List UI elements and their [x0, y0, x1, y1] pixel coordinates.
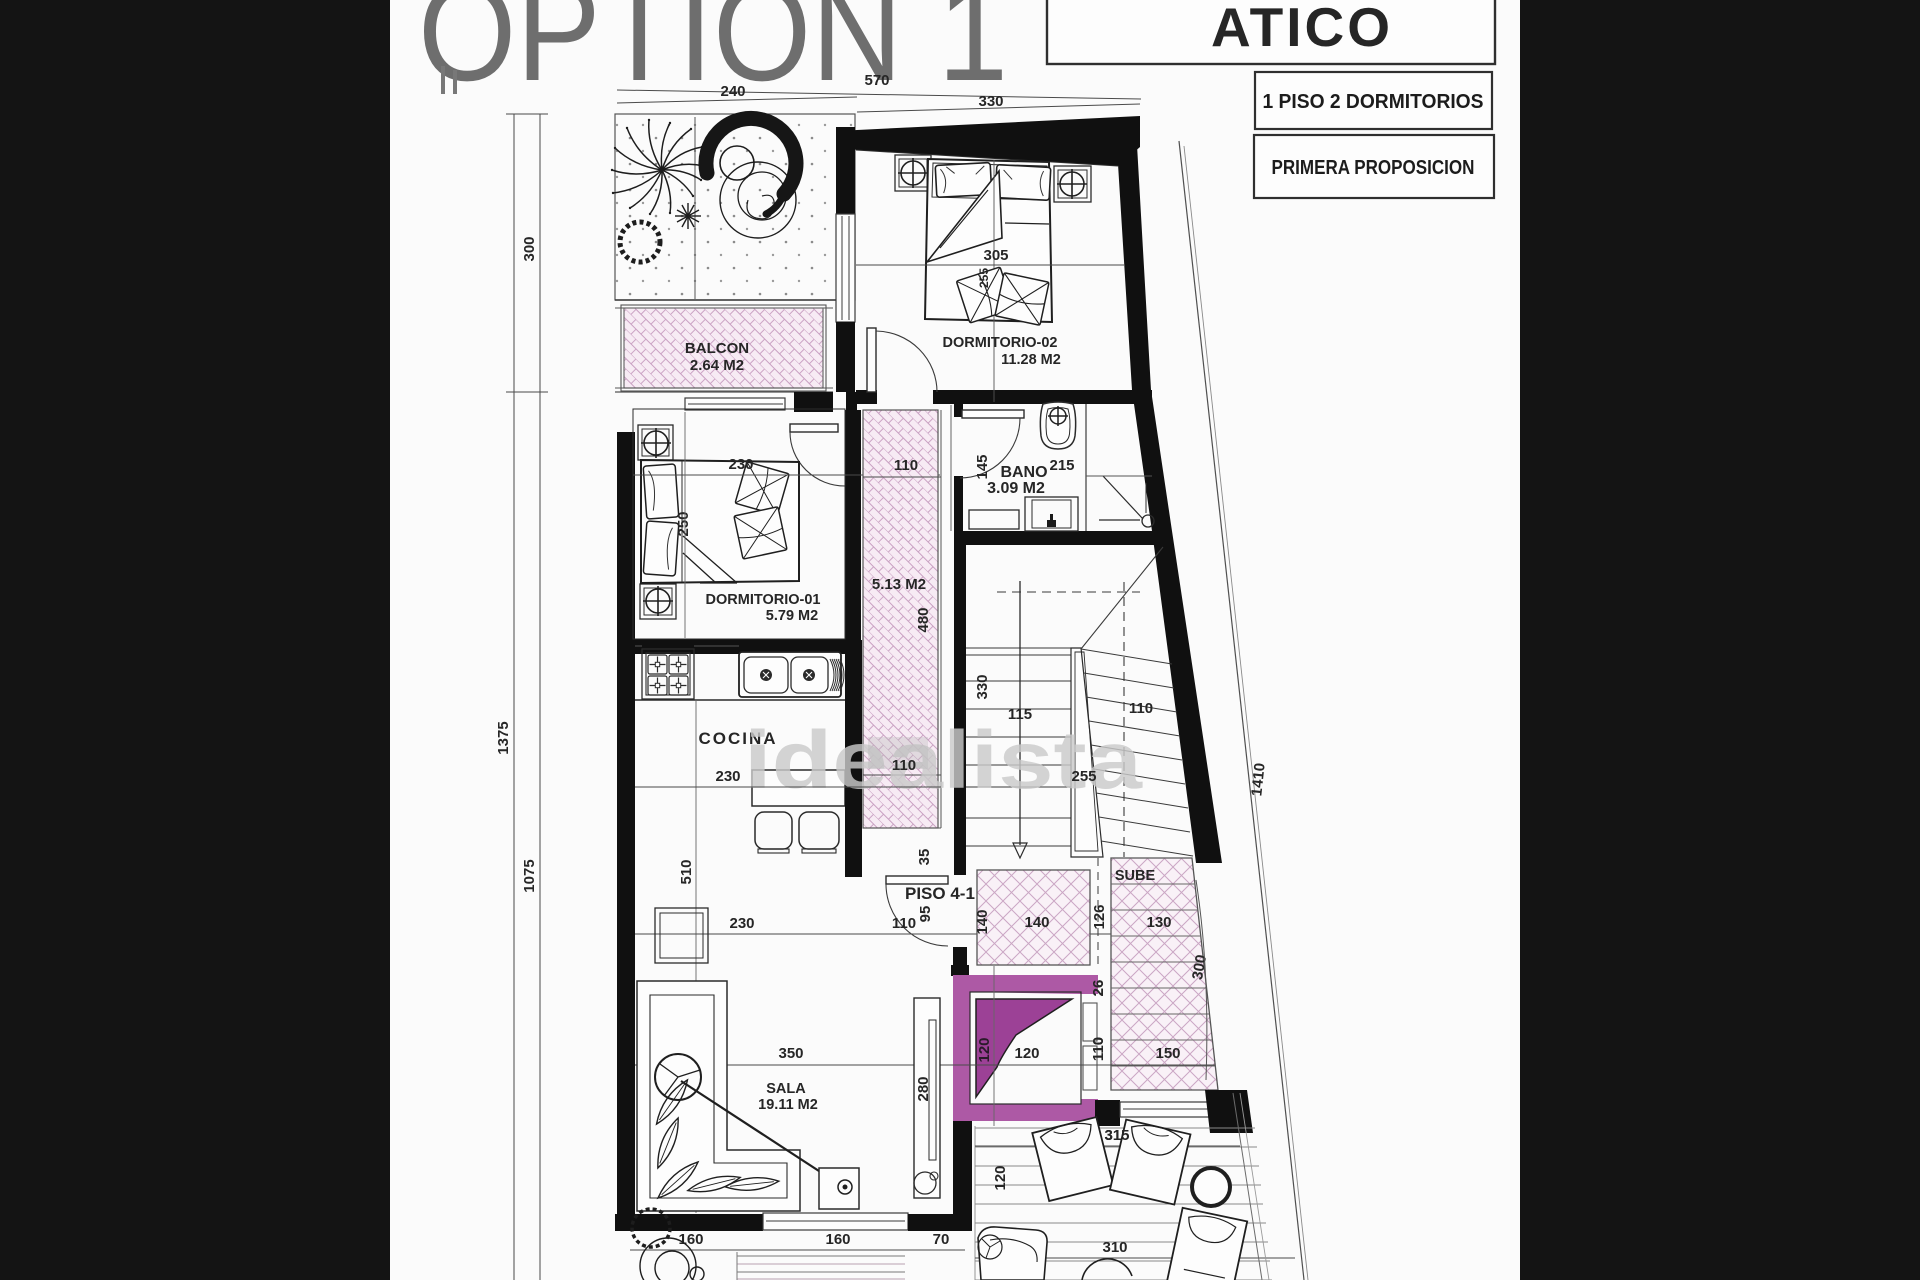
svg-text:350: 350	[778, 1045, 803, 1062]
svg-text:230: 230	[728, 456, 753, 473]
svg-text:70: 70	[933, 1231, 950, 1248]
svg-text:240: 240	[720, 83, 745, 100]
svg-text:SALA: SALA	[766, 1081, 806, 1097]
svg-text:255: 255	[1071, 768, 1096, 785]
svg-text:120: 120	[992, 1165, 1009, 1190]
svg-text:570: 570	[864, 72, 889, 89]
svg-text:1410: 1410	[1248, 762, 1268, 797]
svg-text:215: 215	[1049, 457, 1074, 474]
svg-text:150: 150	[1155, 1045, 1180, 1062]
svg-text:110: 110	[1090, 1037, 1107, 1061]
svg-text:130: 130	[1146, 914, 1171, 931]
svg-text:280: 280	[915, 1076, 932, 1101]
svg-text:305: 305	[983, 247, 1008, 264]
svg-text:OPTION 1: OPTION 1	[418, 0, 1008, 110]
svg-text:PISO 4-1: PISO 4-1	[905, 884, 975, 903]
svg-text:SUBE: SUBE	[1115, 868, 1156, 884]
svg-text:230: 230	[729, 915, 754, 932]
svg-text:5.13 M2: 5.13 M2	[872, 576, 926, 593]
svg-text:95: 95	[917, 906, 934, 923]
svg-text:BANO: BANO	[1000, 464, 1047, 481]
svg-text:19.11 M2: 19.11 M2	[758, 1097, 818, 1113]
svg-text:160: 160	[825, 1231, 850, 1248]
svg-text:ATICO: ATICO	[1211, 0, 1393, 58]
svg-text:145: 145	[974, 454, 991, 479]
svg-text:110: 110	[892, 757, 916, 774]
svg-text:310: 310	[1102, 1239, 1127, 1256]
svg-text:110: 110	[894, 457, 918, 474]
svg-text:3.09 M2: 3.09 M2	[987, 480, 1045, 497]
svg-text:26: 26	[1090, 980, 1107, 997]
svg-text:idealista: idealista	[744, 715, 1144, 806]
svg-text:330: 330	[978, 93, 1003, 110]
svg-text:250: 250	[675, 511, 692, 536]
svg-text:11.28 M2: 11.28 M2	[1001, 352, 1061, 368]
svg-text:BALCON: BALCON	[685, 340, 749, 357]
svg-text:1075: 1075	[521, 859, 538, 892]
svg-text:126: 126	[1091, 904, 1108, 929]
svg-text:DORMITORIO-01: DORMITORIO-01	[706, 592, 821, 608]
svg-text:480: 480	[915, 607, 932, 632]
svg-text:120: 120	[1014, 1045, 1039, 1062]
svg-text:160: 160	[678, 1231, 703, 1248]
svg-text:DORMITORIO-02: DORMITORIO-02	[943, 335, 1058, 351]
svg-text:120: 120	[976, 1037, 993, 1062]
svg-text:5.79 M2: 5.79 M2	[766, 608, 818, 624]
svg-text:110: 110	[892, 915, 916, 932]
svg-text:140: 140	[1024, 914, 1049, 931]
svg-text:2.64 M2: 2.64 M2	[690, 357, 744, 374]
svg-text:1375: 1375	[495, 721, 512, 754]
svg-text:510: 510	[678, 859, 695, 884]
svg-text:110: 110	[1129, 700, 1153, 717]
svg-text:315: 315	[1104, 1127, 1129, 1144]
svg-text:35: 35	[916, 849, 933, 866]
svg-text:330: 330	[974, 674, 991, 699]
svg-text:115: 115	[1008, 706, 1032, 723]
svg-text:PRIMERA PROPOSICION: PRIMERA PROPOSICION	[1272, 157, 1475, 179]
svg-text:255: 255	[977, 268, 991, 288]
svg-text:230: 230	[715, 768, 740, 785]
svg-text:1 PISO 2 DORMITORIOS: 1 PISO 2 DORMITORIOS	[1263, 91, 1484, 113]
svg-text:300: 300	[521, 236, 538, 261]
svg-text:140: 140	[974, 909, 991, 934]
